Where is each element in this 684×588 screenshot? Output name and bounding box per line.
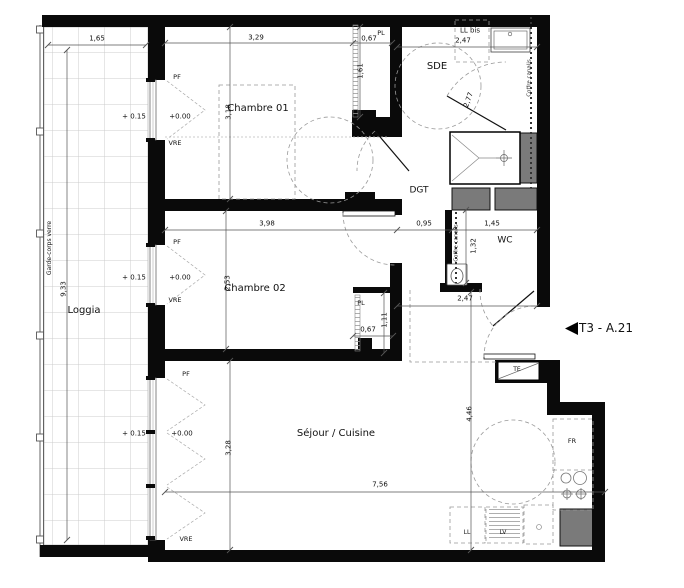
level-interior-1: +0.00 bbox=[169, 114, 190, 121]
dim-chambre02-width: 3,98 bbox=[259, 221, 275, 228]
dim-sejour-height-left: 3,28 bbox=[226, 440, 233, 456]
plan-linework bbox=[0, 0, 684, 588]
dim-sejour-width: 7,56 bbox=[372, 482, 388, 489]
dim-entry-width: 2,47 bbox=[457, 296, 473, 303]
level-loggia-2: + 0.15 bbox=[122, 275, 146, 282]
coffre-label-wc: Coffre canalis bbox=[454, 224, 460, 261]
glass-railing bbox=[37, 25, 44, 557]
dim-chambre02-height: 2,53 bbox=[225, 275, 232, 291]
washer-label: LL bbox=[464, 530, 471, 536]
dim-sde-width: 2,47 bbox=[455, 38, 471, 45]
dim-chambre01-width: 3,29 bbox=[248, 35, 264, 42]
turning-circle-sejour bbox=[471, 420, 555, 504]
unit-pointer-icon bbox=[565, 322, 578, 335]
room-label-chambre02: Chambre 02 bbox=[224, 284, 285, 294]
room-label-wc: WC bbox=[497, 237, 512, 246]
level-interior-3: +0.00 bbox=[171, 431, 192, 438]
level-interior-2: +0.00 bbox=[169, 275, 190, 282]
window-label-vre-3: VRE bbox=[179, 536, 192, 543]
washbasin bbox=[491, 28, 530, 52]
dim-pl2-width: 0,67 bbox=[360, 327, 376, 334]
washer-outline bbox=[450, 507, 485, 543]
room-label-loggia: Loggia bbox=[67, 306, 100, 316]
room-label-chambre01: Chambre 01 bbox=[227, 104, 288, 114]
coffre-label-sde: Coffre canalis bbox=[527, 59, 533, 96]
closet-label-pl2: PL bbox=[357, 300, 365, 307]
window-label-pf-2: PF bbox=[173, 239, 181, 246]
window-label-vre-1: VRE bbox=[168, 140, 181, 147]
window-label-vre-2: VRE bbox=[168, 297, 181, 304]
room-label-sejour: Séjour / Cuisine bbox=[297, 429, 375, 439]
dim-loggia-width: 1,65 bbox=[89, 36, 105, 43]
railing-label: Garde-corps verre bbox=[47, 221, 53, 275]
shower bbox=[450, 132, 520, 184]
dim-sejour-height-right: 4,46 bbox=[467, 406, 474, 422]
duct-blocks bbox=[452, 133, 593, 546]
dim-chambre01-height: 3,18 bbox=[226, 104, 233, 120]
floor-plan: Loggia Garde-corps verre 9,33 1,65 + 0.1… bbox=[0, 0, 684, 588]
window-swings bbox=[167, 81, 205, 539]
kitchen-sink-and-hob bbox=[561, 472, 587, 501]
room-label-dgt: DGT bbox=[409, 187, 428, 196]
washer-alt-label: LL bis bbox=[460, 28, 480, 35]
entry-zone-boundary bbox=[410, 290, 497, 362]
dim-pl1-height: 1,61 bbox=[358, 63, 365, 79]
level-loggia-3: + 0.15 bbox=[122, 431, 146, 438]
window-label-pf-1: PF bbox=[173, 74, 181, 81]
window-label-pf-3: PF bbox=[182, 371, 190, 378]
closet-fronts bbox=[353, 25, 520, 541]
electrical-panel-label: TE bbox=[513, 367, 520, 373]
level-loggia-1: + 0.15 bbox=[122, 114, 146, 121]
dishwasher-label: LV bbox=[500, 530, 507, 536]
dim-wc-width: 1,45 bbox=[484, 221, 500, 228]
dim-wc-height: 1,32 bbox=[471, 238, 478, 254]
dim-dgt-width: 0,95 bbox=[416, 221, 432, 228]
dim-pl2-height: 1,11 bbox=[382, 312, 389, 328]
unit-label: T3 - A.21 bbox=[579, 322, 633, 334]
kitchen-counter-outline bbox=[553, 419, 593, 510]
fridge-label: FR bbox=[568, 438, 576, 445]
closet-label-pl1: PL bbox=[377, 30, 385, 37]
dim-loggia-height: 9,33 bbox=[61, 281, 68, 297]
room-label-sde: SDE bbox=[427, 62, 447, 72]
dim-pl1-width: 0,67 bbox=[361, 36, 377, 43]
turning-circle-sde bbox=[395, 43, 481, 129]
